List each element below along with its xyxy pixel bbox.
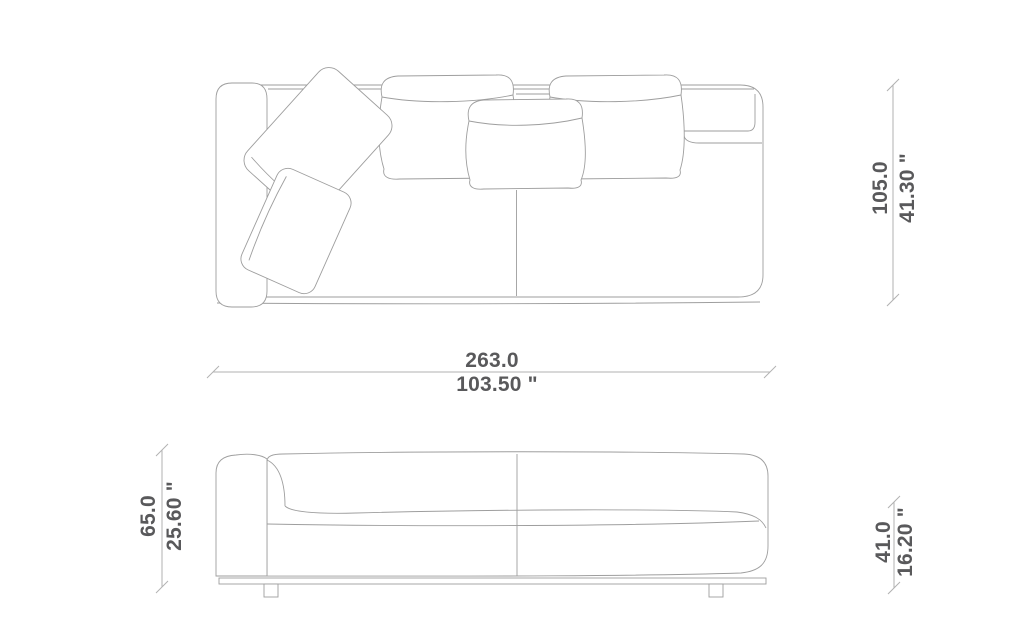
top-depth-metric-label: 105.0 [869, 161, 893, 215]
top-view-seat-front-line [217, 302, 760, 304]
front-view-body [267, 452, 768, 576]
top-width-metric-label: 263.0 [465, 349, 519, 373]
front-height-imperial-label: 25.60 " [163, 481, 187, 551]
front-view-base-plinth [219, 578, 766, 584]
top-view [216, 62, 763, 307]
front-height-metric-label: 65.0 [137, 495, 161, 537]
front-view [216, 452, 768, 597]
sofa-dimension-drawing-page: 263.0 103.50 " 105.0 41.30 " 65.0 25.60 … [0, 0, 1024, 640]
front-view-armrest [216, 454, 267, 576]
top-view-center-cushion [466, 99, 586, 189]
sofa-technical-drawing [0, 0, 1024, 640]
front-seat-height-imperial-label: 16.20 " [894, 507, 918, 577]
top-depth-imperial-label: 41.30 " [896, 153, 920, 223]
top-width-imperial-label: 103.50 " [456, 373, 538, 397]
front-view-foot-left [264, 584, 278, 597]
front-seat-height-metric-label: 41.0 [872, 521, 896, 563]
front-view-foot-right [709, 584, 723, 597]
